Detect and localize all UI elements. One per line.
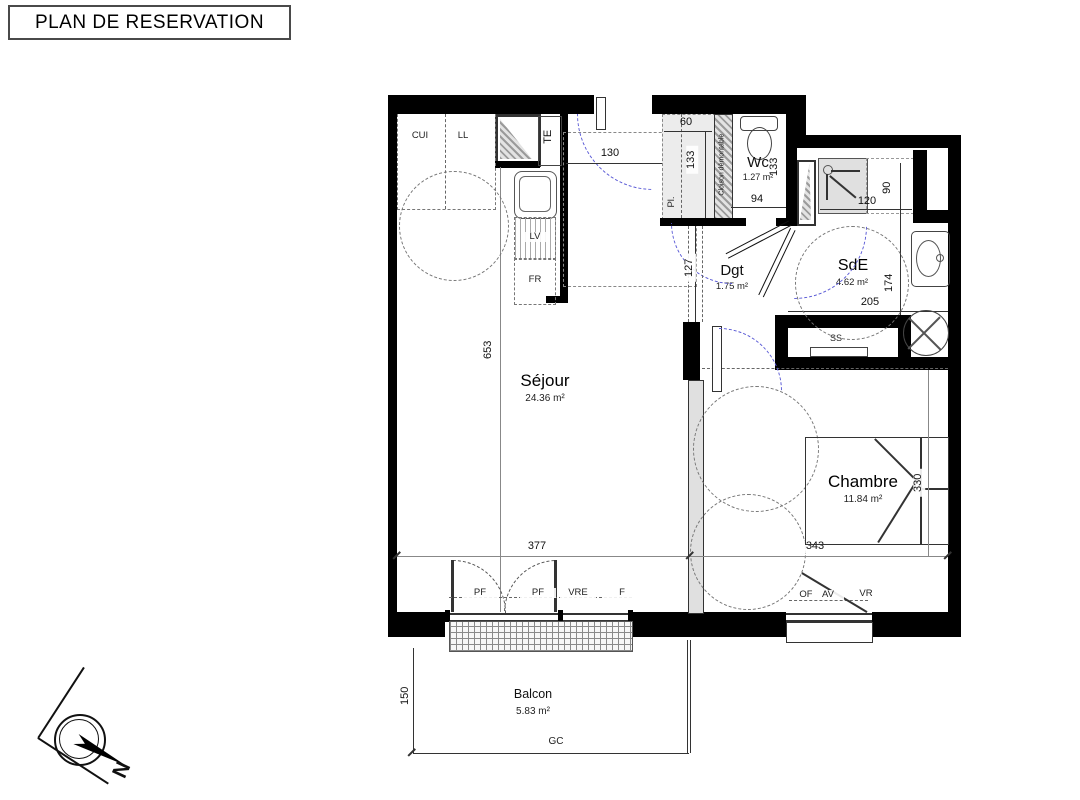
bed	[805, 437, 922, 545]
dim-sejour-width: 377	[515, 541, 559, 553]
te-label: TE	[543, 123, 555, 151]
compass: N	[30, 700, 160, 795]
dishwasher-label: LV	[523, 232, 547, 242]
dim-closet-width: 60	[664, 117, 708, 129]
dim-closet-depth: 133	[686, 146, 698, 174]
sejour-room-label: Séjour	[485, 372, 605, 390]
dim-passage: 127	[684, 254, 696, 282]
plan-title: PLAN DE RESERVATION	[35, 12, 264, 34]
window-vr-label: VR	[850, 589, 882, 599]
compass-inner-circle	[59, 719, 99, 759]
dim-line-entrance	[566, 163, 664, 164]
balcony-right-line	[687, 640, 688, 753]
closet-label: Pl.	[667, 188, 677, 216]
wall-bottom-left	[388, 612, 445, 637]
dim-sejour-length: 653	[483, 336, 495, 364]
wall-top-left	[388, 95, 594, 114]
duct-triangle-icon	[500, 119, 532, 159]
kitchen-cui-label: CUI	[400, 131, 440, 141]
window-vre-label: VRE	[560, 588, 596, 598]
window-leaf-left	[451, 560, 454, 612]
balcony-left-line	[413, 648, 414, 753]
sejour-window-frame-top	[445, 613, 632, 615]
shower-arm-line	[831, 170, 860, 172]
wall-partition-stub	[683, 322, 700, 380]
turning-circle-sde	[795, 226, 909, 340]
floor-plan-page: PLAN DE RESERVATION TE CUI LL LV FR 130 …	[0, 0, 1080, 800]
washbasin	[911, 231, 950, 287]
wall-bottom-right	[872, 612, 961, 637]
dim-line-widths	[397, 556, 948, 557]
dim-entrance: 130	[588, 148, 632, 160]
towel-rail-icon	[810, 347, 868, 357]
sejour-room-area: 24.36 m²	[485, 394, 605, 405]
wall-sde-inner-horiz	[913, 210, 961, 223]
dim-shower-depth: 90	[882, 174, 894, 202]
partition-label: Cloison démontable	[718, 110, 725, 220]
sde-duct-triangle-icon	[800, 164, 811, 220]
wall-wc-right	[786, 114, 797, 220]
dim-balcony-depth: 150	[400, 682, 412, 710]
window-f-label: F	[604, 588, 640, 598]
balcony-right-line2	[690, 640, 691, 753]
dishwasher-box: LV	[514, 217, 556, 260]
plan-title-box: PLAN DE RESERVATION	[8, 5, 291, 40]
kitchen-sink	[514, 171, 557, 219]
window-pf1-label: PF	[462, 588, 498, 598]
window-av-label: AV	[812, 590, 844, 600]
washer-ll-label: LL	[443, 131, 483, 141]
dim-line-closet-depth	[705, 131, 706, 218]
wall-bottom-mid	[632, 612, 786, 637]
chambre-window-frame-top	[786, 613, 872, 615]
chambre-room-label: Chambre	[803, 473, 923, 491]
chambre-room-area: 11.84 m²	[803, 495, 923, 506]
threshold-grid	[449, 621, 633, 652]
balcon-room-area: 5.83 m²	[473, 707, 593, 718]
passage-edge-right	[702, 226, 703, 322]
dim-line-wc-width	[731, 207, 786, 208]
dim-chambre-depth: 330	[913, 469, 925, 497]
wall-top-mid	[652, 95, 806, 114]
sde-duct-box	[797, 160, 816, 226]
closet-divider	[681, 114, 682, 218]
dim-line-shower-width	[820, 209, 912, 210]
chambre-window-sill	[786, 622, 873, 643]
dim-line-chambre-depth	[928, 370, 929, 556]
dgt-room-area: 1.75 m²	[702, 282, 762, 292]
dim-wc-depth: 133	[769, 153, 781, 181]
balcony-bottom-line	[413, 753, 689, 754]
wall-duct-bottom	[495, 161, 540, 168]
balcon-room-label: Balcon	[473, 688, 593, 701]
fridge-box: FR	[514, 258, 556, 305]
turning-circle-kitchen	[399, 171, 509, 281]
turning-circle-dgt	[693, 386, 819, 512]
window-pf2-label: PF	[520, 588, 556, 598]
fridge-label: FR	[517, 275, 553, 285]
railing-label: GC	[538, 737, 574, 748]
chambre-window-open-line	[789, 600, 868, 601]
duct-box	[495, 114, 541, 167]
shower-drop-line	[826, 174, 828, 200]
bed-pillow-bottom	[920, 489, 949, 545]
wall-ss-left	[775, 315, 788, 370]
dim-wc-width: 94	[735, 194, 779, 206]
window-leaf-right	[554, 560, 557, 612]
wall-sde-top	[797, 135, 961, 148]
